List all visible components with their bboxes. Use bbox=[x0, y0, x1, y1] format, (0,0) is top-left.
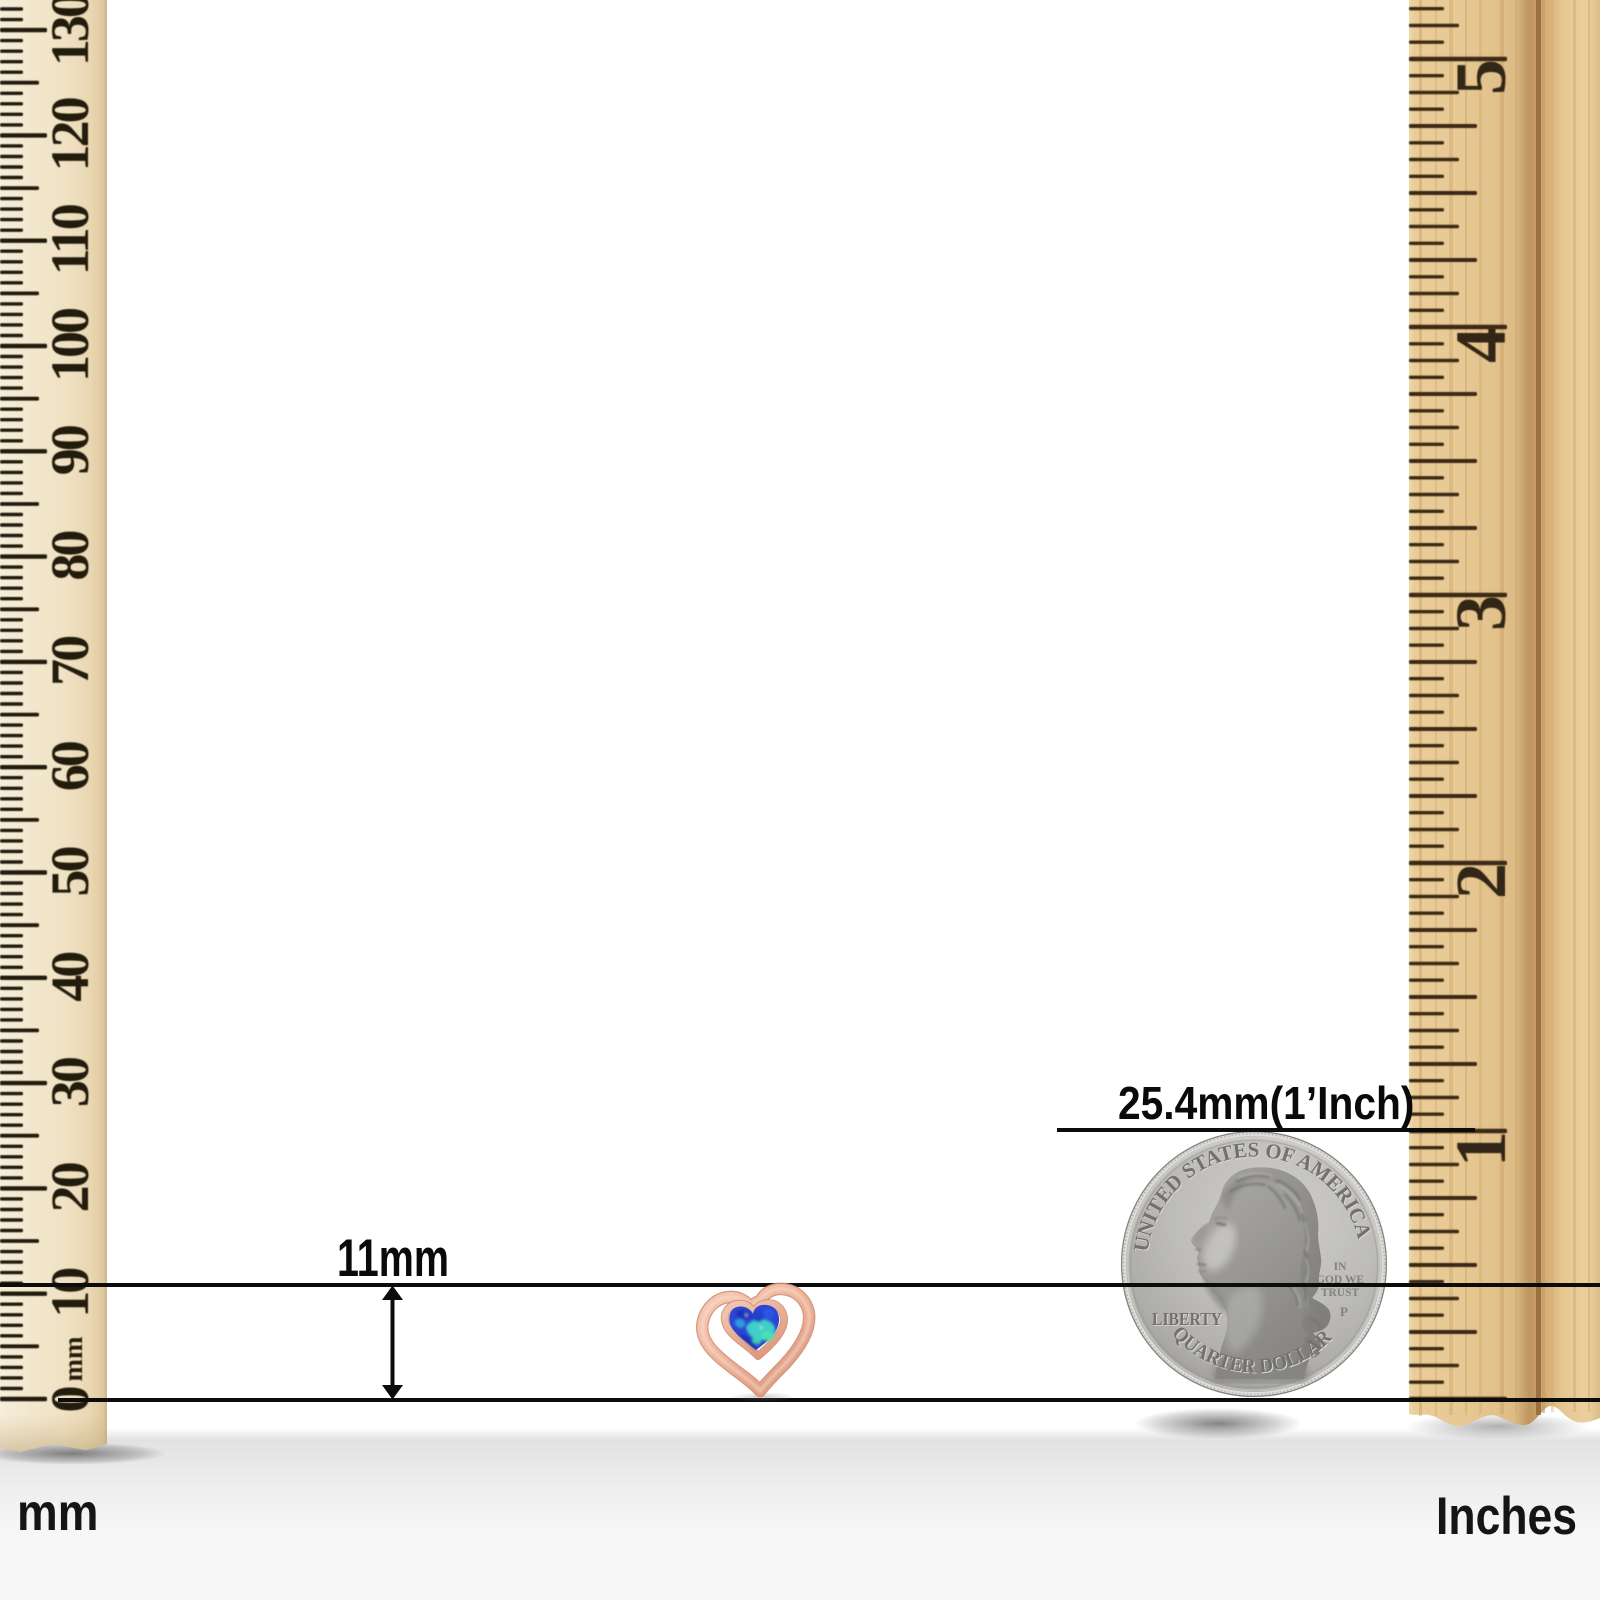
svg-text:60: 60 bbox=[40, 742, 100, 791]
svg-text:P: P bbox=[1340, 1304, 1348, 1319]
svg-text:90: 90 bbox=[40, 426, 100, 475]
svg-text:TRUST: TRUST bbox=[1321, 1287, 1360, 1299]
svg-text:20: 20 bbox=[40, 1163, 100, 1212]
svg-text:10: 10 bbox=[40, 1269, 100, 1318]
svg-text:3: 3 bbox=[1441, 595, 1521, 631]
svg-text:30: 30 bbox=[40, 1058, 100, 1107]
svg-text:LIBERTY: LIBERTY bbox=[1152, 1309, 1222, 1329]
svg-text:2: 2 bbox=[1441, 863, 1521, 899]
svg-text:80: 80 bbox=[40, 532, 100, 581]
svg-text:mm: mm bbox=[58, 1336, 88, 1381]
svg-text:50: 50 bbox=[40, 848, 100, 897]
svg-text:130: 130 bbox=[40, 0, 100, 66]
svg-text:40: 40 bbox=[40, 953, 100, 1002]
svg-text:70: 70 bbox=[40, 637, 100, 686]
svg-text:5: 5 bbox=[1441, 59, 1521, 95]
svg-text:IN: IN bbox=[1334, 1261, 1347, 1273]
svg-text:1: 1 bbox=[1441, 1131, 1521, 1167]
svg-text:4: 4 bbox=[1441, 327, 1521, 363]
svg-text:110: 110 bbox=[40, 205, 100, 275]
svg-text:100: 100 bbox=[40, 309, 100, 382]
svg-text:120: 120 bbox=[40, 98, 100, 171]
